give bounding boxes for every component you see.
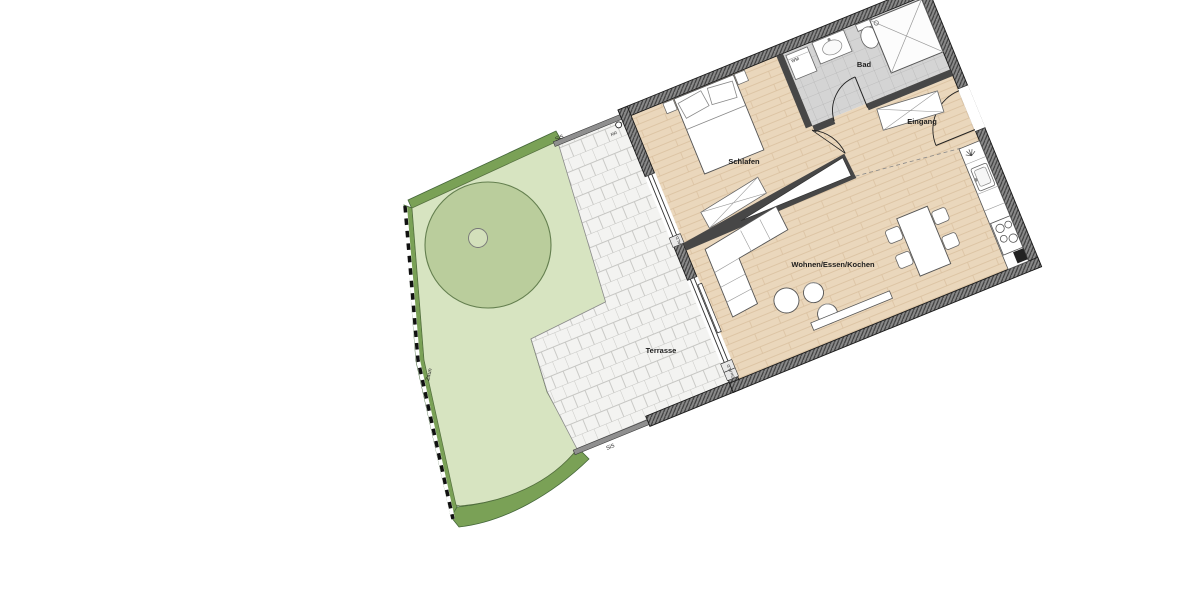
svg-text:Eingang: Eingang xyxy=(907,117,937,126)
svg-text:Wohnen/Essen/Kochen: Wohnen/Essen/Kochen xyxy=(791,260,875,269)
svg-text:Bad: Bad xyxy=(857,60,872,69)
svg-text:Terrasse: Terrasse xyxy=(646,346,677,355)
svg-text:Schlafen: Schlafen xyxy=(728,157,760,166)
